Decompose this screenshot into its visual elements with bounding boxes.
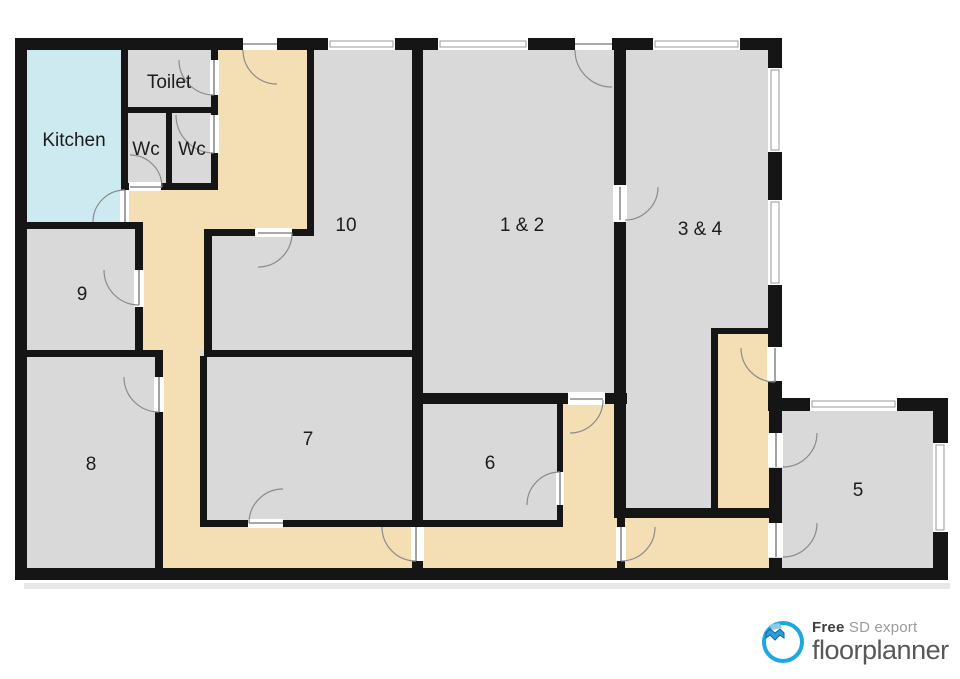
- floorplanner-cube-icon: [762, 621, 804, 663]
- label-kitchen: Kitchen: [42, 130, 105, 151]
- label-room-7: 7: [303, 429, 314, 450]
- free-label: Free: [812, 619, 845, 636]
- label-room-10: 10: [335, 215, 356, 236]
- room10-floor-upper: [307, 50, 423, 236]
- label-room-5: 5: [853, 480, 864, 501]
- window: [768, 200, 782, 285]
- window: [933, 443, 948, 532]
- room3-4-floor-upper: [614, 38, 782, 334]
- window: [810, 398, 897, 411]
- brand-name: floorplanner: [812, 637, 949, 664]
- floorplanner-logo[interactable]: Free SD export floorplanner: [762, 620, 949, 664]
- label-wc-right: Wc: [178, 139, 205, 160]
- label-toilet: Toilet: [147, 72, 192, 93]
- label-room-9: 9: [77, 284, 88, 305]
- floorplanner-wordmark: Free SD export floorplanner: [812, 620, 949, 664]
- window: [653, 38, 740, 50]
- cube-glyph: [762, 620, 788, 646]
- label-wc-left: Wc: [132, 139, 159, 160]
- room10-floor-lower: [204, 229, 423, 357]
- label-room-1-2: 1 & 2: [500, 215, 544, 236]
- label-room-8: 8: [86, 454, 97, 475]
- export-tagline: Free SD export: [812, 620, 949, 635]
- building-shadow: [24, 583, 950, 589]
- sd-export-label: SD export: [849, 619, 918, 636]
- floorplan-page: Kitchen Toilet Wc Wc 10 1 & 2 3 & 4 9 8 …: [0, 0, 960, 679]
- room3-4-floor-leg: [614, 328, 718, 518]
- window: [768, 68, 782, 152]
- floorplan-drawing: Kitchen Toilet Wc Wc 10 1 & 2 3 & 4 9 8 …: [0, 0, 960, 600]
- window: [328, 38, 395, 50]
- label-room-3-4: 3 & 4: [678, 219, 723, 240]
- window: [438, 38, 528, 50]
- label-room-6: 6: [485, 453, 496, 474]
